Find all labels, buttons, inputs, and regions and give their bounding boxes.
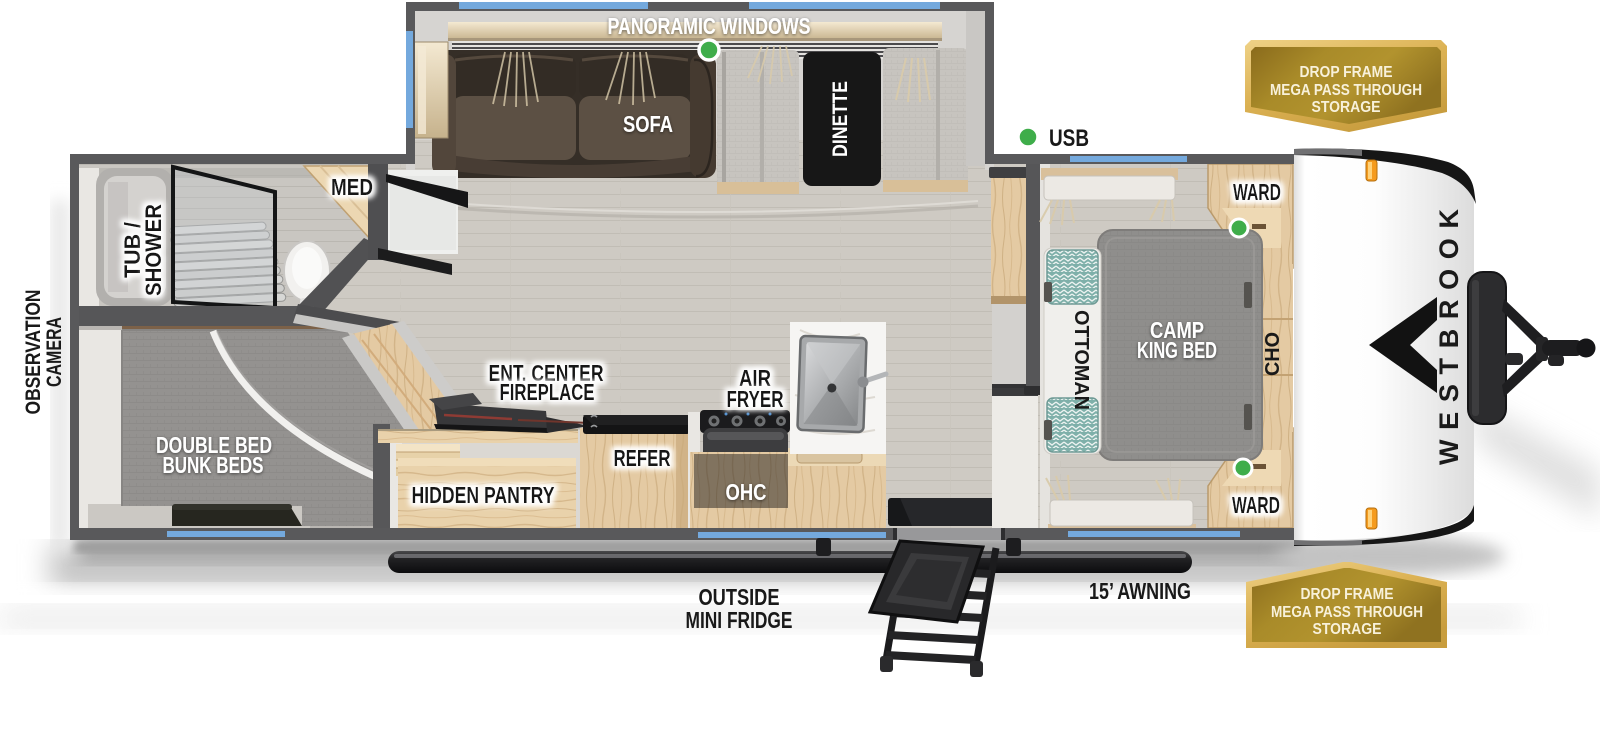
svg-text:STORAGE: STORAGE bbox=[1313, 621, 1382, 638]
svg-text:15’ AWNING: 15’ AWNING bbox=[1089, 578, 1191, 604]
svg-text:STORAGE: STORAGE bbox=[1312, 99, 1381, 116]
svg-text:REFER: REFER bbox=[614, 445, 671, 471]
svg-text:MINI FRIDGE: MINI FRIDGE bbox=[686, 607, 793, 633]
svg-text:CAMERA: CAMERA bbox=[43, 317, 66, 387]
svg-text:KING BED: KING BED bbox=[1137, 337, 1217, 363]
svg-text:BUNK BEDS: BUNK BEDS bbox=[163, 452, 264, 478]
svg-text:FIREPLACE: FIREPLACE bbox=[500, 379, 595, 405]
svg-text:FRYER: FRYER bbox=[727, 386, 784, 412]
svg-text:WARD: WARD bbox=[1232, 492, 1280, 518]
svg-text:WESTBROOK: WESTBROOK bbox=[1434, 209, 1464, 466]
svg-text:OTTOMAN: OTTOMAN bbox=[1070, 310, 1092, 410]
svg-text:HIDDEN PANTRY: HIDDEN PANTRY bbox=[412, 482, 555, 508]
svg-text:SHOWER: SHOWER bbox=[141, 204, 166, 296]
svg-text:OHC: OHC bbox=[726, 479, 767, 505]
svg-text:OBSERVATION: OBSERVATION bbox=[22, 290, 45, 415]
svg-text:DINETTE: DINETTE bbox=[829, 81, 852, 157]
svg-text:SOFA: SOFA bbox=[623, 111, 673, 137]
svg-text:PANORAMIC WINDOWS: PANORAMIC WINDOWS bbox=[608, 13, 811, 39]
svg-text:USB: USB bbox=[1049, 125, 1089, 152]
svg-text:MEGA PASS THROUGH: MEGA PASS THROUGH bbox=[1270, 82, 1422, 99]
svg-text:CHO: CHO bbox=[1262, 332, 1284, 376]
svg-text:DROP FRAME: DROP FRAME bbox=[1301, 586, 1394, 603]
svg-text:MED: MED bbox=[331, 174, 373, 200]
svg-text:MEGA PASS THROUGH: MEGA PASS THROUGH bbox=[1271, 604, 1423, 621]
svg-text:WARD: WARD bbox=[1233, 179, 1281, 205]
svg-text:DROP FRAME: DROP FRAME bbox=[1300, 64, 1393, 81]
